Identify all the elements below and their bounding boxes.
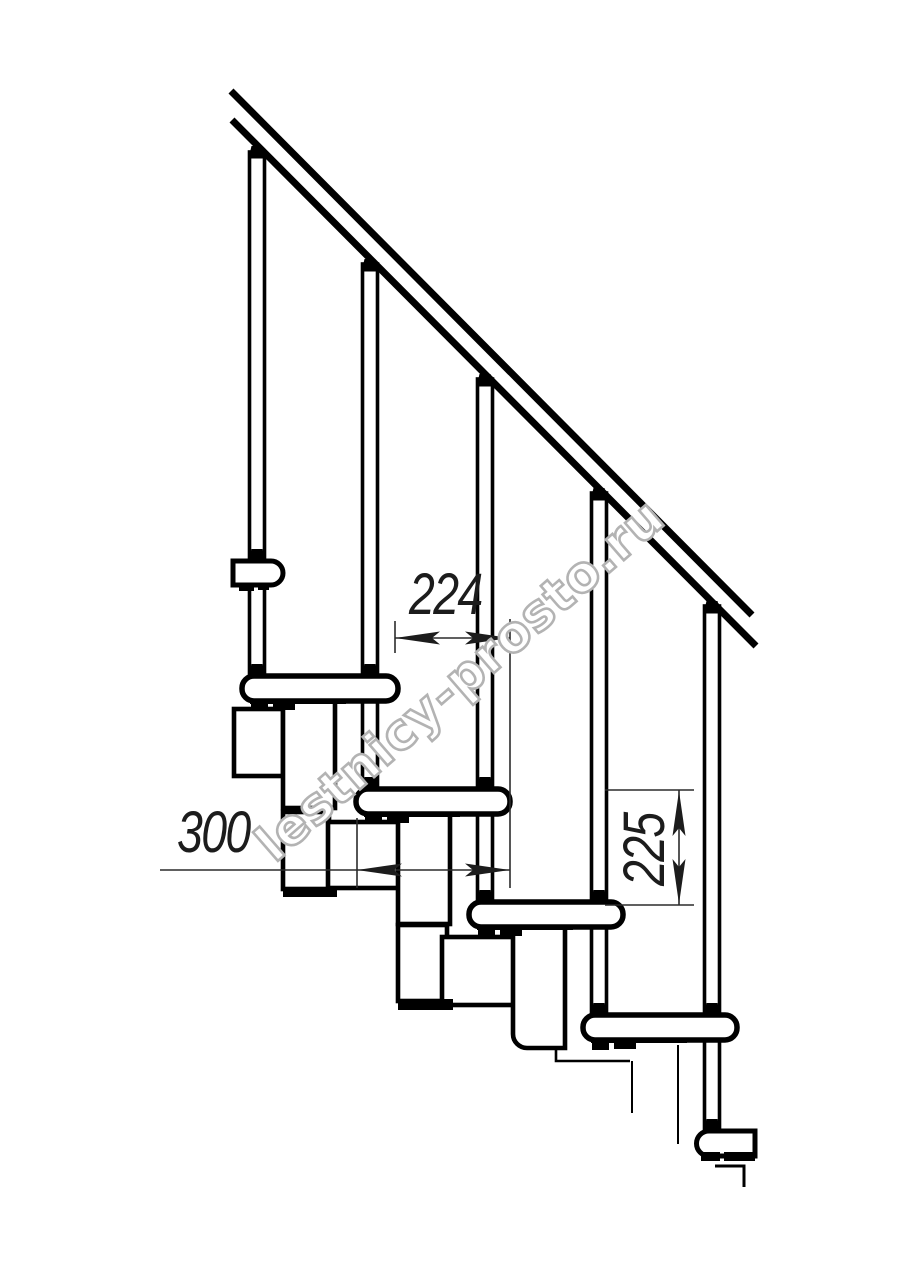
bracket-top-foot-2 bbox=[258, 585, 269, 590]
dimension-label-225: 225 bbox=[616, 814, 674, 886]
module-column-3-lower bbox=[398, 925, 447, 1001]
module-column-3-upper bbox=[398, 814, 450, 924]
module-box-1 bbox=[328, 822, 404, 888]
bracket-top-foot-1 bbox=[239, 585, 254, 591]
tread-2 bbox=[356, 789, 510, 814]
staircase-side-view-drawing bbox=[0, 0, 914, 1280]
tread-3 bbox=[469, 902, 623, 927]
module-base-bar-1 bbox=[283, 887, 337, 897]
drawing-sheet: 224 300 225 lestnicy-prosto.ru bbox=[0, 0, 914, 1280]
module-base-bar-2 bbox=[398, 999, 453, 1010]
bracket-top bbox=[233, 561, 283, 585]
dimension-label-224: 224 bbox=[409, 566, 482, 624]
module-arm-left bbox=[234, 709, 283, 776]
bracket-bottom-foot-2 bbox=[724, 1152, 755, 1161]
tread-4 bbox=[583, 1015, 737, 1040]
baluster-2 bbox=[363, 264, 378, 791]
tread-1 bbox=[242, 676, 398, 701]
module-column-4 bbox=[513, 926, 565, 1048]
bracket-bottom-foot-1 bbox=[701, 1152, 720, 1161]
sheet-background bbox=[0, 0, 914, 1280]
baluster-1 bbox=[250, 152, 265, 678]
module-box-2 bbox=[442, 937, 518, 1005]
baluster-5 bbox=[705, 606, 720, 1133]
